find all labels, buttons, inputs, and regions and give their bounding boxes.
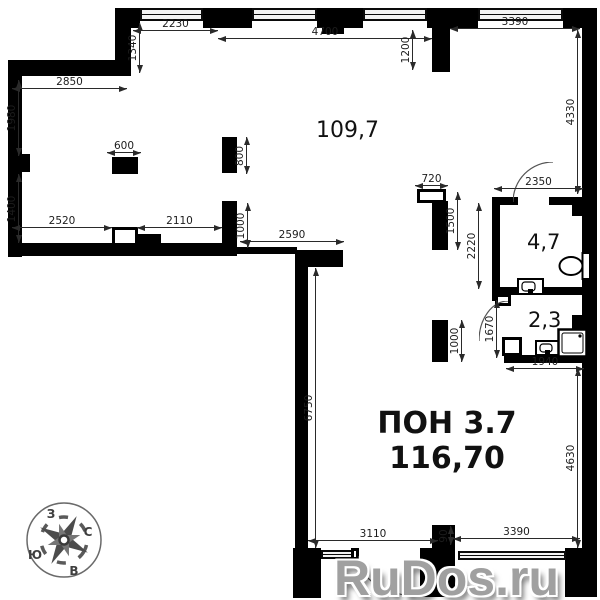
dim-col-600: 600 [107,152,141,153]
wall [135,234,161,244]
window [363,8,427,21]
wall [8,60,131,76]
wall [582,8,597,597]
dim-bottom-3390: 3390 [453,538,580,539]
dim-pil-1000-upper: 1000 [247,203,248,248]
dim-bottom-3110: 3110 [308,540,438,541]
dim-bot-2520: 2520 [12,227,112,228]
dim-left-1980: 1980 [18,80,19,156]
dim-right-4330: 4330 [577,30,578,194]
floor-plan: 2230 4700 3390 2850 600 2520 2110 2590 7… [0,0,600,600]
door-opening [112,227,138,246]
wall [492,197,500,293]
dim-top-3390: 3390 [450,28,580,29]
dim-top-2230: 2230 [133,30,218,31]
compass-south-label: Ю [28,548,42,562]
compass-west-label: З [47,507,56,521]
toilet-icon [558,251,592,281]
wall [203,8,252,28]
dim-shower-1940: 1940 [506,368,584,369]
dim-shower-1670: 1670 [496,300,497,358]
dim-shaft-1500: 1500 [457,192,458,250]
dim-left-1340: 1340 [139,23,140,73]
wall [8,154,30,172]
compass-north-label: С [84,525,93,539]
dim-left-2850: 2850 [12,88,127,89]
compass-east-label: В [69,564,78,578]
room-area-main: 116,70 [342,441,552,476]
room-name-main: ПОН 3.7 [342,406,552,441]
room-label-hall: 109,7 [316,118,379,143]
window [252,8,317,21]
column [112,157,138,174]
dim-bottom-90: 90 [450,526,451,545]
dim-shaft-720: 720 [415,185,448,186]
dim-low-6750: 6750 [315,268,316,548]
dim-left-1400: 1400 [18,174,19,243]
shower-tray-icon [557,328,589,359]
wall-pillar [432,320,448,362]
wall [237,247,297,254]
wall [432,20,450,72]
watermark: RuDos.ru [334,549,559,600]
dim-pil-1000-lower: 1000 [461,320,462,362]
compass-rose: З С Ю В [18,493,110,587]
room-label-shower: 2,3 [528,308,561,332]
sink-icon [517,278,544,295]
dim-mid-2590: 2590 [240,241,344,242]
dim-pil-800: 800 [246,137,247,174]
dim-wc-2220: 2220 [478,203,479,289]
dim-stub-1200: 1200 [412,30,413,70]
room-label-wc: 4,7 [527,230,560,254]
wall [565,548,597,597]
wall [293,548,321,598]
dim-wc-2350: 2350 [494,188,583,189]
dim-low-4630: 4630 [577,368,578,548]
shaft-box [417,189,446,203]
dim-bot-2110: 2110 [137,227,222,228]
